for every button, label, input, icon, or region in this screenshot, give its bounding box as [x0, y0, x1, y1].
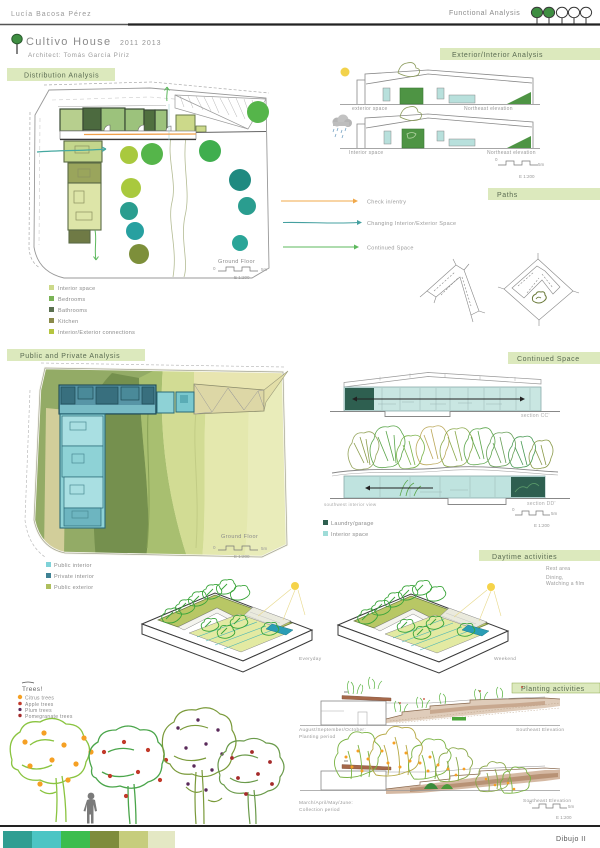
svg-text:5m: 5m [551, 511, 558, 516]
svg-text:2011 2013: 2011 2013 [120, 40, 162, 47]
svg-text:Exterior/Interior Analysis: Exterior/Interior Analysis [452, 52, 543, 59]
svg-text:Private interior: Private interior [54, 574, 94, 580]
svg-text:Rest area: Rest area [546, 566, 570, 572]
svg-text:5m: 5m [261, 267, 268, 272]
svg-text:5m: 5m [568, 804, 575, 809]
svg-text:Collection period: Collection period [299, 807, 340, 813]
svg-text:Continued Space: Continued Space [367, 246, 414, 252]
svg-text:Northeast elevation: Northeast elevation [464, 106, 513, 112]
svg-text:Continued Space: Continued Space [517, 356, 580, 363]
svg-text:Architect: Tomás García Pír: Architect: Tomás García Píriz [28, 52, 130, 59]
svg-text:E 1:200: E 1:200 [556, 815, 572, 820]
svg-text:southwest interior view: southwest interior view [324, 502, 377, 507]
svg-text:Everyday: Everyday [299, 656, 322, 662]
svg-text:E 1:200: E 1:200 [234, 554, 250, 559]
svg-text:section DD': section DD' [527, 501, 556, 507]
svg-text:Dibujo II: Dibujo II [556, 836, 586, 843]
svg-text:E 1:200: E 1:200 [234, 275, 250, 280]
svg-text:Watching a film: Watching a film [546, 581, 585, 587]
svg-text:Ground Floor: Ground Floor [218, 259, 255, 265]
svg-text:Kitchen: Kitchen [58, 319, 78, 325]
svg-text:Daytime activities: Daytime activities [492, 554, 557, 561]
svg-text:Bedrooms: Bedrooms [58, 297, 85, 303]
svg-text:exterior space: exterior space [352, 106, 388, 112]
svg-text:Planting activities: Planting activities [521, 686, 585, 693]
svg-text:section CC': section CC' [521, 413, 550, 419]
svg-text:Distribution Analysis: Distribution Analysis [24, 73, 99, 80]
svg-text:Weekend: Weekend [494, 656, 516, 662]
svg-text:Interior/Exterior connections: Interior/Exterior connections [58, 330, 135, 336]
svg-text:Planting period: Planting period [299, 734, 336, 740]
svg-text:Public exterior: Public exterior [54, 585, 93, 591]
svg-text:5m: 5m [538, 162, 545, 167]
svg-text:Public and Private Analysis: Public and Private Analysis [20, 353, 120, 360]
svg-text:E 1:200: E 1:200 [519, 174, 535, 179]
svg-text:Functional Analysis: Functional Analysis [449, 10, 520, 17]
svg-text:Citrus trees: Citrus trees [25, 696, 54, 702]
svg-text:Changing Interior/Exterior S: Changing Interior/Exterior Space [367, 221, 456, 227]
svg-text:Check in/entry: Check in/entry [367, 200, 406, 206]
svg-text:Laundry/garage: Laundry/garage [331, 521, 374, 527]
svg-text:Cultivo House: Cultivo House [26, 36, 111, 48]
svg-text:Paths: Paths [497, 192, 518, 199]
svg-text:Interior space: Interior space [58, 286, 96, 292]
svg-text:5m: 5m [261, 546, 268, 551]
svg-text:Interior space: Interior space [331, 532, 369, 538]
svg-text:Lucía Bacosa Pérez: Lucía Bacosa Pérez [11, 11, 92, 18]
svg-text:March/April/May/June:: March/April/May/June: [299, 800, 353, 806]
svg-text:Public interior: Public interior [54, 563, 92, 569]
svg-text:Southeast Elevation: Southeast Elevation [516, 727, 564, 733]
svg-text:Trees!: Trees! [22, 686, 43, 693]
svg-text:Northeast elevation: Northeast elevation [487, 150, 536, 156]
svg-text:Ground Floor: Ground Floor [221, 534, 258, 540]
svg-text:Interior space: Interior space [349, 150, 384, 156]
svg-text:Bathrooms: Bathrooms [58, 308, 87, 314]
svg-text:E 1:200: E 1:200 [534, 523, 550, 528]
